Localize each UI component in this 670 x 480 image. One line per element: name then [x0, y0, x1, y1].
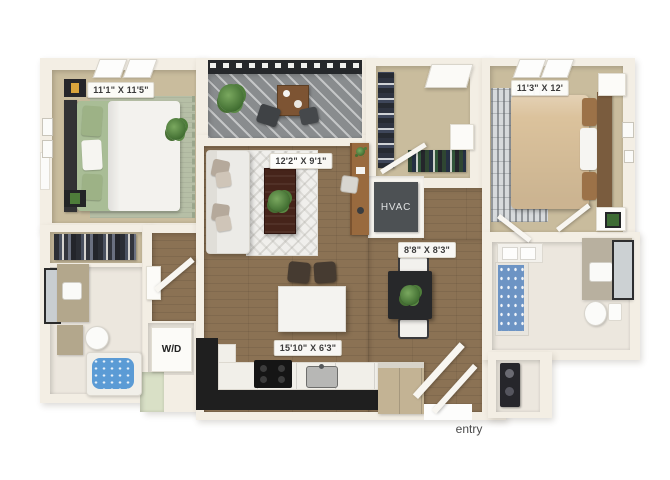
bar-stool-1 — [287, 261, 311, 284]
dining-table-plant — [400, 285, 420, 305]
bed-right-pillow-brown-2 — [582, 172, 597, 200]
desk-chair — [340, 175, 359, 194]
living-room-dimensions: 12'2" X 9'1" — [269, 153, 332, 169]
art-plant-frame — [64, 190, 86, 207]
vacuum-cleaner — [500, 363, 520, 407]
green-floor-patch — [140, 372, 164, 412]
kitchen-island — [278, 286, 346, 332]
bed-left-duvet — [108, 101, 180, 211]
washer-dryer-unit: W/D — [151, 327, 192, 372]
desk-plant — [356, 147, 365, 156]
art-yellow — [71, 83, 79, 93]
sofa-pillow-2 — [215, 171, 232, 188]
bed-right-headboard — [597, 92, 612, 214]
balcony-railing-slats — [210, 63, 360, 68]
shower — [495, 262, 529, 336]
toilet-left — [85, 326, 109, 350]
sofa-pillow-4 — [215, 215, 232, 232]
kitchen-cabinet-row — [218, 362, 380, 390]
balcony-plant — [218, 84, 244, 112]
bedroom-left-dimensions: 11'1" X 11'5" — [87, 82, 154, 98]
kitchen-sink — [306, 366, 338, 388]
nightstand-right-top — [598, 73, 626, 96]
hanging-clothes-left — [54, 234, 136, 260]
sink-left — [62, 282, 82, 300]
closet-drawer-unit — [450, 124, 474, 150]
sink-right — [589, 262, 613, 282]
wall-art-right-2 — [624, 150, 634, 163]
stove — [254, 360, 292, 388]
floor-plan: HVAC 11'1" X 11'5" W/D — [0, 0, 670, 480]
shower-curtain — [498, 265, 524, 331]
balcony-table-plate-1 — [283, 90, 290, 97]
bed-left-pillow-green-1 — [81, 105, 103, 136]
kitchen-dimensions: 15'10" X 6'3" — [274, 340, 342, 356]
desk-lamp — [357, 207, 364, 214]
towel-1 — [502, 247, 518, 260]
washer-dryer-label: W/D — [162, 344, 181, 355]
dining-dimensions: 8'8" X 8'3" — [398, 242, 456, 258]
towel-shelf — [497, 243, 543, 263]
bed-left-pillow-white — [81, 139, 103, 170]
bedroom-right-dimensions: 11'3" X 12' — [511, 80, 569, 96]
burner-4 — [278, 376, 285, 383]
bedroom-left-plant — [166, 118, 186, 140]
ceiling-vent — [425, 64, 474, 88]
bar-stool-2 — [313, 261, 336, 283]
wall-art-left-2 — [42, 140, 53, 158]
wall-art-left-1 — [42, 118, 53, 136]
bathtub-water — [92, 358, 134, 389]
bathtub — [86, 352, 142, 396]
bed-right-pillow-brown-1 — [582, 98, 597, 126]
closet-rack-left — [378, 72, 394, 168]
toilet-paper-holder — [608, 303, 622, 321]
hvac-label: HVAC — [381, 202, 411, 213]
vacuum-detail-1 — [505, 369, 514, 378]
towel-2 — [520, 247, 536, 260]
coffee-table-plant — [268, 190, 290, 212]
nightstand-right-bottom — [596, 207, 626, 231]
balcony-table-plate-2 — [294, 100, 302, 108]
burner-2 — [278, 365, 285, 372]
closet-rack-bottom — [408, 150, 466, 172]
art-plant-green — [70, 193, 80, 204]
dining-chair-bottom — [398, 318, 429, 339]
vanity-left — [57, 264, 89, 322]
dresser-with-art — [64, 79, 86, 97]
toilet-right — [584, 301, 607, 326]
hvac-unit: HVAC — [374, 182, 418, 232]
vanity-mirror-right — [612, 240, 634, 300]
faucet — [319, 364, 324, 369]
entry-label: entry — [456, 422, 483, 436]
burner-3 — [260, 376, 267, 383]
desk-paper — [356, 167, 365, 174]
burner-1 — [260, 365, 267, 372]
wall-art-right-1 — [622, 122, 634, 138]
bath-cabinet-left — [57, 325, 83, 355]
bed-right-pillow-white — [580, 128, 597, 170]
nightstand-green-art — [605, 212, 621, 228]
vacuum-detail-2 — [505, 387, 514, 396]
entry-threshold — [424, 404, 472, 420]
bed-right-duvet — [511, 95, 589, 209]
balcony-railing — [208, 60, 362, 74]
hallway-right-floor — [422, 188, 482, 240]
